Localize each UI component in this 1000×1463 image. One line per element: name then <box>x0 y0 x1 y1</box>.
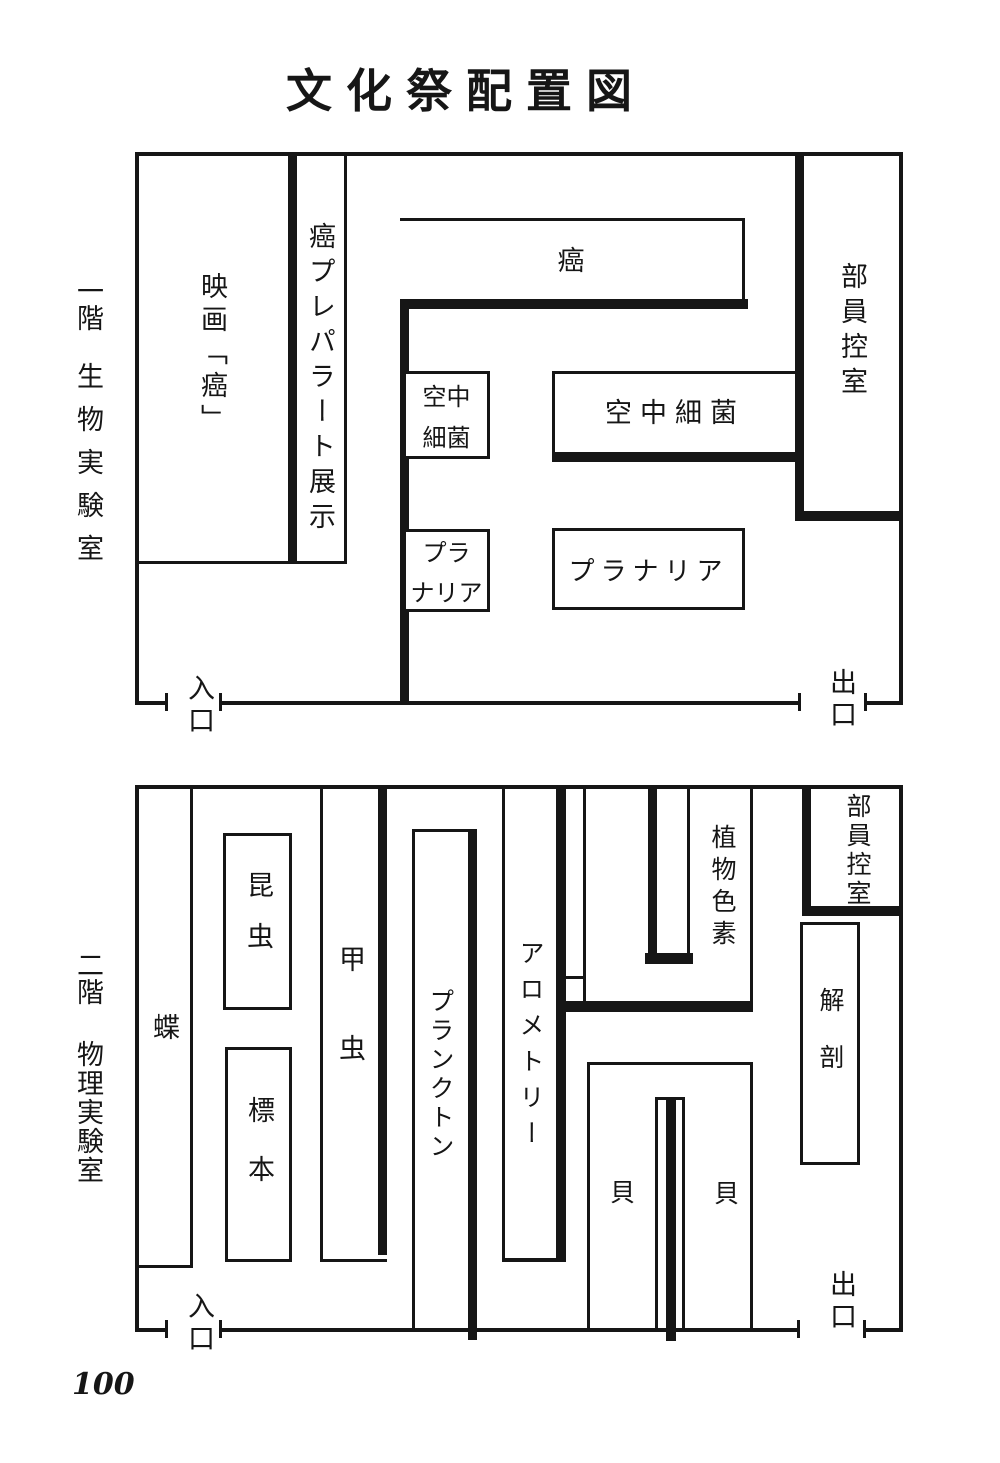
f1-airborne-small-line1: 空中 <box>423 377 471 412</box>
f1-cancer-label: 癌 <box>558 248 585 275</box>
f1-exit-tick-right <box>864 693 867 711</box>
f1-entrance-tick-left <box>165 693 168 711</box>
scanned-page: 文化祭配置図 100 一階 生物実験室 映画「癌」 癌プレパラート展示 癌 空中… <box>0 0 1000 1463</box>
f1-airborne-large-booth: 空中細菌 <box>552 371 795 452</box>
f1-airborne-small-line2: 細菌 <box>423 418 471 453</box>
f1-movie-bottom <box>135 561 347 564</box>
f1-entrance-label: 入口 <box>185 674 212 738</box>
f1-planaria-large-booth: プラナリア <box>552 528 745 610</box>
f1-airborne-large-label: 空中細菌 <box>605 400 745 427</box>
f2-corridor-rung <box>566 976 586 979</box>
f2-pigment-slot-cap <box>645 953 693 964</box>
f2-allometry-cap <box>502 1258 566 1262</box>
f2-dissection-label: 解剖 <box>812 987 848 1101</box>
f1-movie-label: 映画「癌」 <box>198 272 225 437</box>
f2-beetle-cap <box>320 1259 387 1262</box>
f1-wall-right <box>899 152 903 705</box>
f2-plankton-left-line <box>412 829 415 1330</box>
f2-plankton-label: プランクトン <box>428 988 453 1162</box>
f2-exit-tick-right <box>863 1320 866 1338</box>
f1-airborne-small-booth: 空中 細菌 <box>403 371 490 459</box>
f1-wall-bottom-seg1 <box>135 701 167 705</box>
f2-butterfly-line <box>190 785 193 1268</box>
f2-wall-top <box>135 785 903 789</box>
f1-exit-tick-left <box>798 693 801 711</box>
f2-shell-right-line <box>750 1062 753 1330</box>
f2-butterfly-cap <box>135 1265 193 1268</box>
f2-exit-tick-left <box>797 1320 800 1338</box>
f2-pigment-slot-thin <box>687 785 690 953</box>
f2-shell-divider-thin-right <box>682 1100 685 1330</box>
f2-staffroom-label: 部員控室 <box>845 793 870 909</box>
f2-shell-right-label: 貝 <box>714 1181 739 1206</box>
page-title: 文化祭配置図 <box>286 68 646 114</box>
f2-shell-divider-thin-left <box>655 1100 658 1330</box>
f1-planaria-small-booth: プラ ナリア <box>403 529 490 612</box>
f1-wall-bottom-seg2 <box>219 701 801 705</box>
f1-wall-top <box>135 152 903 156</box>
f1-wall-bottom-seg3 <box>867 701 903 705</box>
f2-plankton-cap <box>412 829 477 832</box>
f2-butterfly-label: 蝶 <box>150 1013 177 1040</box>
f1-planaria-small-line1: プラ <box>423 533 471 568</box>
f1-prep-column-right <box>344 152 347 564</box>
f1-exit-label: 出口 <box>827 668 854 732</box>
f2-shell-left-label: 貝 <box>610 1180 635 1205</box>
f2-plankton-thick-line <box>468 829 477 1340</box>
f2-beetle-label: 甲虫 <box>336 945 363 1123</box>
f1-entrance-tick-right <box>219 693 222 711</box>
floor2-floor-label: 二階 <box>74 951 101 1005</box>
f2-wall-bottom-seg3 <box>866 1328 903 1332</box>
f1-cancer-bottom-bar <box>400 299 748 309</box>
f2-allometry-thick-line <box>556 785 566 1262</box>
f2-pigment-bottom-bar <box>566 1001 753 1012</box>
f2-beetle-thick-line <box>378 785 387 1255</box>
f1-wall-left <box>135 152 139 705</box>
f2-wall-right <box>899 785 903 1332</box>
f2-shell-divider-thick <box>666 1100 676 1341</box>
f2-corridor-line <box>583 785 586 1003</box>
f1-planaria-small-line2: ナリア <box>411 573 483 608</box>
f2-pigment-label: 植物色素 <box>710 824 735 952</box>
f2-entrance-tick-left <box>165 1320 168 1338</box>
f2-allometry-label: アロメトリー <box>518 940 543 1156</box>
floor2-room-label: 物理実験室 <box>74 1040 101 1185</box>
f2-beetle-left-line <box>320 785 323 1262</box>
f1-staffroom-label: 部員控室 <box>838 262 865 402</box>
floor1-floor-label: 一階 <box>74 277 101 331</box>
f1-planaria-large-label: プラナリア <box>568 551 728 588</box>
f2-specimen-label: 標本 <box>239 1096 278 1214</box>
f1-staffroom-bottom-bar <box>795 511 903 521</box>
f1-airborne-large-bottom-bar <box>552 452 804 462</box>
f2-wall-bottom-seg2 <box>219 1328 800 1332</box>
f2-shell-left-line <box>587 1062 590 1330</box>
f1-cancer-booth: 癌 <box>400 218 745 302</box>
f2-entrance-tick-right <box>219 1320 222 1338</box>
f2-shell-top <box>587 1062 753 1065</box>
f2-insect-label: 昆虫 <box>238 871 277 973</box>
page-number: 100 <box>72 1370 135 1400</box>
f2-specimen-booth: 標本 <box>225 1047 292 1262</box>
f2-staffroom-wall-thick <box>802 785 811 916</box>
f2-dissection-booth: 解剖 <box>800 922 860 1165</box>
f2-wall-bottom-seg1 <box>135 1328 167 1332</box>
floor1-room-label: 生物実験室 <box>74 362 101 577</box>
f2-wall-left <box>135 785 139 1332</box>
f2-exit-label: 出口 <box>827 1270 854 1334</box>
f1-movie-divider-thick <box>288 152 297 564</box>
f2-allometry-left-line <box>502 785 505 1262</box>
f2-insect-booth: 昆虫 <box>223 833 292 1010</box>
f2-pigment-right-line <box>750 785 753 1003</box>
f2-pigment-slot-thick <box>648 785 657 953</box>
f1-staffroom-wall-thick <box>795 152 804 521</box>
f2-entrance-label: 入口 <box>185 1292 212 1356</box>
f1-prep-exhibit-label: 癌プレパラート展示 <box>306 222 333 537</box>
